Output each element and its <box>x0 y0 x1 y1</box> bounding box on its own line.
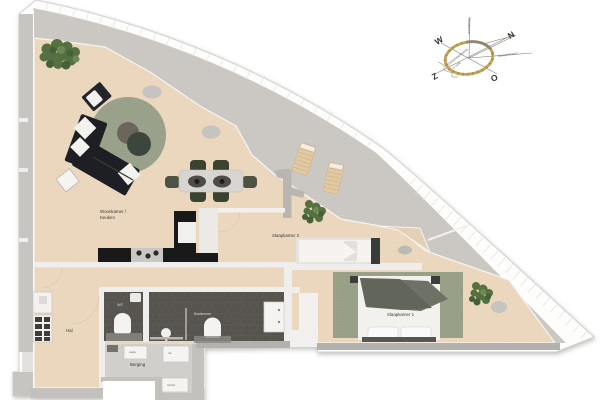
svg-text:vaatw.: vaatw. <box>129 350 137 354</box>
svg-text:Badkamer: Badkamer <box>194 312 212 316</box>
svg-text:O: O <box>489 72 500 84</box>
svg-text:ZON/MIDDAG: ZON/MIDDAG <box>467 17 471 34</box>
svg-text:Keuken: Keuken <box>100 215 115 220</box>
svg-text:WC: WC <box>117 303 124 307</box>
svg-text:Slaapkamer 2: Slaapkamer 2 <box>272 233 300 238</box>
svg-text:Hal: Hal <box>66 328 73 333</box>
svg-text:ZONSOPKOMST: ZONSOPKOMST <box>498 51 519 58</box>
svg-text:Berging: Berging <box>130 362 146 367</box>
svg-text:Slaapkamer 1: Slaapkamer 1 <box>387 312 415 317</box>
svg-text:Woonkamer /: Woonkamer / <box>100 209 127 214</box>
svg-text:wm/wd: wm/wd <box>167 383 176 387</box>
